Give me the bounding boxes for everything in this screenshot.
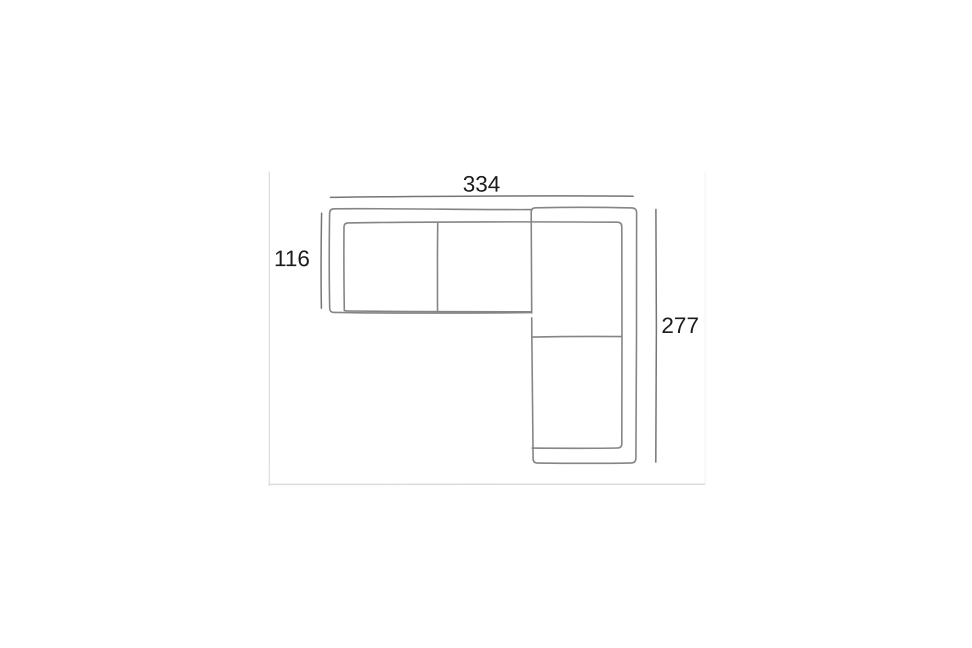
svg-text:334: 334	[463, 172, 501, 197]
svg-text:116: 116	[274, 246, 310, 271]
svg-text:277: 277	[661, 313, 699, 338]
